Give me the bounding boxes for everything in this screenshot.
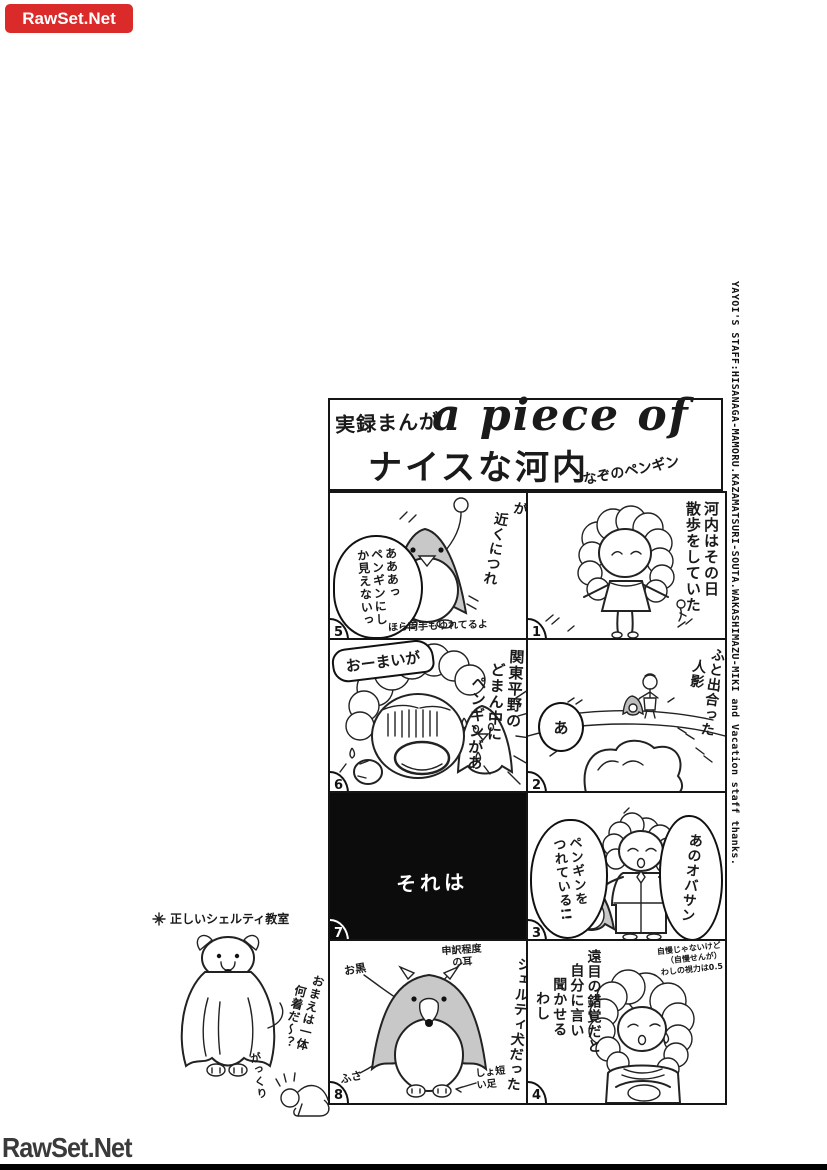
panel4-note: 自慢じゃないけど （自慢せんが） わしの視力は0.5 [657,941,724,979]
title-subtitle: なぞのペンギン [581,451,681,489]
site-watermark-badge: RawSet.Net [5,4,133,33]
panel-3: ペンギンを つれている!! あのオバサン 3 [526,791,727,943]
margin-heading: 正しいシェルティ教室 [170,910,289,927]
panel-2: あ ふと出合った 人影 2 [526,638,727,795]
panel-8: お黒 申訳程度 の耳 シェルティ犬だった ふさ しょ短 い足 8 [328,939,530,1105]
cross-mark-icon [152,912,166,926]
manga-page[interactable]: RawSet.Net RawSet.Net YAYOI'S STAFF:HISA… [0,0,827,1170]
panel7-text: それは [396,866,469,897]
title-main: ナイスな河内 [368,440,589,489]
slumped-person-drawing [272,1066,334,1122]
bottom-black-bar [0,1164,827,1170]
panel-5: あああっ ペンギンにし か見えないっ が 近くにつれ ほら両手もゆれてるよ 5 [328,491,530,642]
panel-6: おーまいが 関東平野の どまん中に ペンギンがあ 6 [328,638,530,795]
panel6-caption: 関東平野の どまん中に ペンギンがあ [466,647,525,774]
panel1-caption: 河内はその日 散歩をしていた [685,501,719,613]
label-legs: しょ短 い足 [475,1065,507,1091]
label-ears: 申訳程度 の耳 [441,944,483,970]
speech-bubble: あ [538,702,584,752]
title-kicker: 実録まんが [335,405,441,438]
site-watermark-footer: RawSet.Net [2,1133,132,1164]
panel-7: それは 7 [328,791,530,943]
exclaim-text: おーまいが [344,646,421,676]
panel-4: 遠目の錯覚だと 自分に言い 聞かせる わし 自慢じゃないけど （自慢せんが） わ… [526,939,727,1105]
panel4-caption: 遠目の錯覚だと 自分に言い 聞かせる わし [534,949,600,1054]
panel-number: 7 [330,919,349,941]
staff-credit-text: YAYOI'S STAFF:HISANAGA-MAMORU.KAZAMATSUR… [729,281,740,866]
speech-bubble-right: あのオバサン [659,815,723,941]
bubble-text: あ [553,717,568,738]
title-box: 実録まんが a piece of ナイスな河内 なぞのペンギン [328,398,723,491]
title-english: a piece of [432,390,690,441]
panel-1: 河内はその日 散歩をしていた 1 [526,491,727,642]
bubble-text: あのオバサン [679,832,703,923]
sheltie-dog-drawing [168,928,288,1080]
